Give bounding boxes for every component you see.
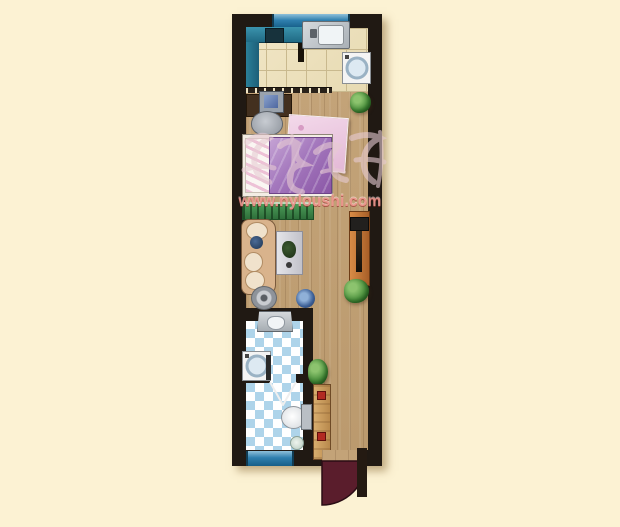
calligraphy-watermark-icon (0, 0, 620, 527)
floor-plan-canvas: www.nyloushi.com (0, 0, 620, 527)
watermark-url-text: www.nyloushi.com (234, 192, 386, 212)
